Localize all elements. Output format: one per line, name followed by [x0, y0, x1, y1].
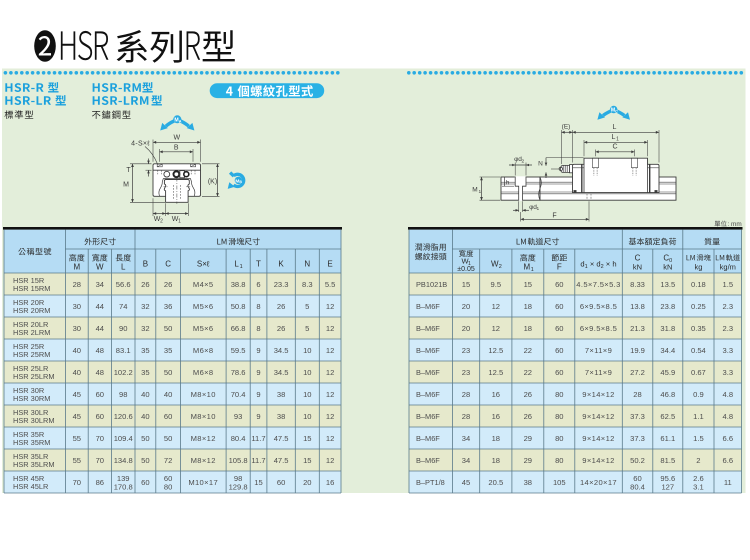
svg-text:45: 45 [73, 412, 81, 421]
svg-text:0.25: 0.25 [691, 302, 706, 311]
svg-text:B–M6F: B–M6F [416, 390, 440, 399]
svg-text:F: F [552, 213, 556, 220]
svg-text:W: W [173, 135, 180, 142]
svg-text:4-S×ℓ: 4-S×ℓ [131, 140, 150, 147]
svg-text:26: 26 [164, 280, 172, 289]
svg-text:M4×5: M4×5 [193, 280, 214, 289]
svg-text:18: 18 [492, 456, 500, 465]
svg-text:B: B [143, 260, 148, 269]
svg-text:27.2: 27.2 [630, 368, 645, 377]
svg-text:B–M6F: B–M6F [416, 302, 440, 311]
svg-text:kg/m: kg/m [720, 262, 736, 271]
svg-text:60: 60 [555, 346, 563, 355]
svg-text:46.8: 46.8 [660, 390, 675, 399]
svg-text:6×9.5×8.5: 6×9.5×8.5 [580, 302, 617, 311]
svg-text:M10×17: M10×17 [188, 478, 218, 487]
svg-text:0.54: 0.54 [691, 346, 706, 355]
svg-text:5.5: 5.5 [325, 280, 336, 289]
svg-text:170.8: 170.8 [114, 483, 133, 492]
svg-text:20.5: 20.5 [488, 478, 503, 487]
svg-text:1.5: 1.5 [693, 434, 704, 443]
svg-text:34: 34 [462, 456, 470, 465]
svg-text:35: 35 [141, 346, 149, 355]
svg-text:48: 48 [96, 368, 104, 377]
svg-text:3.1: 3.1 [693, 483, 704, 492]
svg-text:30: 30 [73, 324, 81, 333]
svg-text:B–PT1/8: B–PT1/8 [416, 478, 445, 487]
svg-text:0.67: 0.67 [691, 368, 706, 377]
svg-text:11.7: 11.7 [251, 456, 265, 465]
svg-text:0.18: 0.18 [691, 280, 706, 289]
svg-text:kg: kg [694, 262, 702, 271]
svg-text:W: W [96, 262, 104, 271]
svg-text:72: 72 [164, 456, 172, 465]
svg-text:9: 9 [256, 346, 260, 355]
svg-text:34.4: 34.4 [660, 346, 675, 355]
svg-text:28: 28 [633, 390, 641, 399]
svg-text:2: 2 [499, 264, 502, 270]
svg-text:3.3: 3.3 [723, 368, 734, 377]
svg-text:56.6: 56.6 [116, 280, 131, 289]
svg-text:8.33: 8.33 [630, 280, 645, 289]
svg-text:80: 80 [164, 483, 172, 492]
svg-text:5: 5 [305, 302, 309, 311]
svg-text:28: 28 [462, 412, 470, 421]
svg-text:1: 1 [531, 267, 534, 273]
svg-text:47.5: 47.5 [274, 434, 289, 443]
svg-text:kN: kN [633, 262, 642, 271]
svg-text:127: 127 [661, 483, 674, 492]
svg-text:16: 16 [326, 478, 334, 487]
svg-text:1: 1 [478, 189, 481, 195]
svg-text:105: 105 [553, 478, 566, 487]
svg-text:HSR 35LRM: HSR 35LRM [13, 460, 54, 469]
svg-text:93: 93 [234, 412, 242, 421]
svg-text:50: 50 [141, 456, 149, 465]
svg-text:78.6: 78.6 [231, 368, 246, 377]
svg-text:12: 12 [326, 368, 334, 377]
svg-text:h: h [506, 180, 510, 187]
svg-text:HSR 2LRM: HSR 2LRM [13, 328, 50, 337]
svg-text:4.5×7.5×5.3: 4.5×7.5×5.3 [576, 280, 620, 289]
svg-text:N: N [538, 161, 543, 168]
svg-text:44: 44 [96, 302, 104, 311]
svg-text:29: 29 [524, 434, 532, 443]
svg-text:28: 28 [462, 390, 470, 399]
svg-text:10: 10 [303, 368, 311, 377]
svg-text:: mm: : mm [728, 221, 742, 228]
svg-text:M8×10: M8×10 [191, 390, 216, 399]
svg-text:11: 11 [724, 478, 732, 487]
svg-text:1: 1 [616, 136, 619, 142]
svg-text:3.3: 3.3 [723, 346, 734, 355]
svg-text:45: 45 [73, 390, 81, 399]
svg-text:70.4: 70.4 [231, 390, 246, 399]
svg-text:M6×8: M6×8 [193, 346, 214, 355]
svg-text:L: L [612, 134, 616, 141]
svg-text:28: 28 [73, 280, 81, 289]
svg-text:40: 40 [73, 346, 81, 355]
svg-text:M: M [73, 262, 80, 271]
svg-text:11.7: 11.7 [251, 434, 265, 443]
svg-text:9.5: 9.5 [491, 280, 502, 289]
svg-text:T: T [256, 260, 261, 269]
svg-text:20: 20 [303, 478, 311, 487]
svg-text:C: C [165, 260, 171, 269]
svg-text:M8×12: M8×12 [191, 456, 216, 465]
svg-text:19.9: 19.9 [630, 346, 645, 355]
svg-text:34: 34 [96, 280, 104, 289]
svg-text:36: 36 [164, 302, 172, 311]
svg-text:129.8: 129.8 [229, 483, 248, 492]
svg-text:47.5: 47.5 [274, 456, 289, 465]
svg-text:8: 8 [256, 302, 260, 311]
svg-text:M: M [123, 182, 129, 189]
svg-text:80: 80 [555, 456, 563, 465]
svg-text:12: 12 [326, 412, 334, 421]
svg-text:L: L [613, 124, 617, 131]
svg-text:21.3: 21.3 [630, 324, 645, 333]
svg-text:34.5: 34.5 [274, 346, 289, 355]
svg-text:83.1: 83.1 [116, 346, 131, 355]
svg-text:15: 15 [303, 434, 311, 443]
svg-text:5: 5 [305, 324, 309, 333]
svg-text:15: 15 [462, 280, 470, 289]
svg-text:12: 12 [326, 390, 334, 399]
svg-text:10: 10 [303, 346, 311, 355]
svg-text:105.8: 105.8 [229, 456, 248, 465]
svg-text:6×9.5×8.5: 6×9.5×8.5 [580, 324, 617, 333]
svg-text:6: 6 [256, 280, 260, 289]
svg-text:M5×6: M5×6 [193, 324, 214, 333]
svg-text:15: 15 [254, 478, 262, 487]
svg-text:M: M [472, 187, 477, 194]
svg-text:95.6: 95.6 [660, 474, 675, 483]
svg-text:40: 40 [164, 390, 172, 399]
svg-text:M8×12: M8×12 [191, 434, 216, 443]
svg-text:N: N [304, 260, 310, 269]
svg-text:62.5: 62.5 [660, 412, 675, 421]
svg-text:26: 26 [524, 390, 532, 399]
svg-text:37.3: 37.3 [630, 412, 645, 421]
svg-text:12: 12 [326, 324, 334, 333]
svg-text:0.9: 0.9 [693, 390, 704, 399]
svg-text:12: 12 [492, 302, 500, 311]
svg-text:45.9: 45.9 [660, 368, 675, 377]
svg-text:60: 60 [164, 474, 172, 483]
svg-text:22: 22 [524, 346, 532, 355]
svg-text:B–M6F: B–M6F [416, 412, 440, 421]
svg-text:12: 12 [492, 324, 500, 333]
svg-text:60: 60 [555, 368, 563, 377]
svg-text:9×14×12: 9×14×12 [582, 456, 614, 465]
svg-text:±0.05: ±0.05 [457, 266, 475, 273]
svg-text:80: 80 [555, 390, 563, 399]
svg-text:22: 22 [524, 368, 532, 377]
svg-text:HSR 20RM: HSR 20RM [13, 306, 50, 315]
svg-text:80.4: 80.4 [231, 434, 246, 443]
svg-text:M5×6: M5×6 [193, 302, 214, 311]
svg-text:80: 80 [555, 412, 563, 421]
svg-text:81.5: 81.5 [660, 456, 675, 465]
svg-text:60: 60 [277, 478, 285, 487]
svg-text:38.8: 38.8 [231, 280, 246, 289]
svg-text:50.2: 50.2 [630, 456, 645, 465]
svg-text:60: 60 [96, 412, 104, 421]
svg-text:50: 50 [164, 368, 172, 377]
svg-text:12.5: 12.5 [488, 346, 503, 355]
svg-text:38: 38 [277, 390, 285, 399]
svg-text:9: 9 [256, 412, 260, 421]
svg-text:10: 10 [303, 390, 311, 399]
svg-text:44: 44 [96, 324, 104, 333]
svg-text:B–M6F: B–M6F [416, 456, 440, 465]
svg-text:M8×10: M8×10 [191, 412, 216, 421]
svg-text:15: 15 [524, 280, 532, 289]
svg-text:8.3: 8.3 [302, 280, 313, 289]
svg-text:HSR 30LRM: HSR 30LRM [13, 416, 54, 425]
svg-text:F: F [557, 262, 562, 271]
svg-text:B–M6F: B–M6F [416, 434, 440, 443]
svg-text:29: 29 [524, 456, 532, 465]
svg-text:13.5: 13.5 [660, 280, 675, 289]
svg-text:B–M6F: B–M6F [416, 368, 440, 377]
svg-text:8: 8 [256, 324, 260, 333]
svg-text:1: 1 [240, 264, 243, 270]
svg-text:HSR 15RM: HSR 15RM [13, 284, 50, 293]
svg-text:98: 98 [119, 390, 127, 399]
svg-text:40: 40 [141, 390, 149, 399]
svg-text:B–M6F: B–M6F [416, 324, 440, 333]
svg-text:38: 38 [524, 478, 532, 487]
svg-text:4.8: 4.8 [723, 412, 734, 421]
svg-text:20: 20 [462, 302, 470, 311]
svg-text:55: 55 [73, 456, 81, 465]
svg-text:35: 35 [164, 346, 172, 355]
svg-text:26: 26 [141, 280, 149, 289]
svg-text:61.1: 61.1 [660, 434, 675, 443]
svg-text:2: 2 [521, 158, 524, 164]
svg-text:32: 32 [141, 302, 149, 311]
svg-text:B: B [174, 144, 179, 151]
svg-text:1: 1 [536, 206, 539, 212]
svg-text:HSR 25RM: HSR 25RM [13, 350, 50, 359]
svg-text:9: 9 [256, 368, 260, 377]
svg-text:60: 60 [96, 390, 104, 399]
svg-text:PB1021B: PB1021B [416, 280, 447, 289]
svg-text:20: 20 [462, 324, 470, 333]
svg-text:16: 16 [492, 412, 500, 421]
svg-text:E: E [327, 260, 332, 269]
svg-text:A: A [179, 120, 182, 124]
svg-text:60: 60 [555, 302, 563, 311]
svg-text:34: 34 [462, 434, 470, 443]
svg-text:66.8: 66.8 [231, 324, 246, 333]
svg-text:T: T [126, 167, 131, 174]
svg-text:70: 70 [73, 478, 81, 487]
svg-text:50: 50 [164, 434, 172, 443]
svg-text:32: 32 [141, 324, 149, 333]
svg-text:12: 12 [326, 434, 334, 443]
svg-text:18: 18 [524, 302, 532, 311]
svg-text:60: 60 [164, 412, 172, 421]
svg-text:23.3: 23.3 [274, 280, 289, 289]
svg-text:HSR 25LRM: HSR 25LRM [13, 372, 54, 381]
svg-text:9×14×12: 9×14×12 [582, 434, 614, 443]
svg-text:23: 23 [462, 368, 470, 377]
svg-text:L: L [121, 262, 126, 271]
svg-text:C: C [615, 110, 618, 114]
svg-text:HSR 35RM: HSR 35RM [13, 438, 50, 447]
svg-text:18: 18 [492, 434, 500, 443]
svg-text:120.6: 120.6 [114, 412, 133, 421]
svg-text:26: 26 [277, 324, 285, 333]
svg-text:59.5: 59.5 [231, 346, 246, 355]
svg-text:60: 60 [555, 280, 563, 289]
svg-text:7×11×9: 7×11×9 [585, 346, 612, 355]
svg-text:B–M6F: B–M6F [416, 346, 440, 355]
svg-text:55: 55 [73, 434, 81, 443]
svg-text:70: 70 [96, 456, 104, 465]
svg-text:6.6: 6.6 [723, 434, 734, 443]
svg-text:0.35: 0.35 [691, 324, 706, 333]
svg-text:2: 2 [160, 219, 163, 225]
svg-text:40: 40 [73, 368, 81, 377]
svg-text:34.5: 34.5 [274, 368, 289, 377]
svg-text:102.2: 102.2 [114, 368, 133, 377]
svg-text:26: 26 [524, 412, 532, 421]
svg-text:2: 2 [696, 456, 700, 465]
svg-text:40: 40 [141, 412, 149, 421]
svg-text:60: 60 [141, 478, 149, 487]
svg-text:6.6: 6.6 [723, 456, 734, 465]
svg-text:9: 9 [256, 390, 260, 399]
svg-text:9×14×12: 9×14×12 [582, 412, 614, 421]
svg-text:2.3: 2.3 [723, 302, 734, 311]
svg-text:(E): (E) [562, 124, 571, 131]
svg-text:60: 60 [555, 324, 563, 333]
svg-text:80: 80 [555, 434, 563, 443]
svg-text:15: 15 [303, 456, 311, 465]
svg-text:26: 26 [277, 302, 285, 311]
svg-text:1.5: 1.5 [723, 280, 734, 289]
svg-text:(K): (K) [208, 179, 217, 186]
svg-text:1: 1 [178, 219, 181, 225]
svg-text:30: 30 [73, 302, 81, 311]
svg-text:45: 45 [462, 478, 470, 487]
svg-text:37.3: 37.3 [630, 434, 645, 443]
svg-text:10: 10 [303, 412, 311, 421]
svg-text:35: 35 [141, 368, 149, 377]
svg-text:4.8: 4.8 [723, 390, 734, 399]
svg-text:74: 74 [119, 302, 127, 311]
svg-text:98: 98 [234, 474, 242, 483]
svg-text:C: C [635, 254, 641, 263]
svg-text:50: 50 [164, 324, 172, 333]
svg-text:HSR 30RM: HSR 30RM [13, 394, 50, 403]
svg-text:13.8: 13.8 [630, 302, 645, 311]
svg-text:139: 139 [117, 474, 130, 483]
svg-text:60: 60 [633, 474, 641, 483]
svg-text:14×20×17: 14×20×17 [580, 478, 617, 487]
svg-text:M6×8: M6×8 [193, 368, 214, 377]
svg-text:1.1: 1.1 [693, 412, 704, 421]
svg-text:134.8: 134.8 [114, 456, 133, 465]
svg-text:S×ℓ: S×ℓ [197, 260, 210, 269]
svg-text:12: 12 [326, 302, 334, 311]
svg-text:50: 50 [141, 434, 149, 443]
svg-text:16: 16 [492, 390, 500, 399]
svg-text:80.4: 80.4 [630, 483, 645, 492]
svg-text:48: 48 [96, 346, 104, 355]
svg-text:31.8: 31.8 [660, 324, 675, 333]
svg-text:C: C [612, 144, 617, 151]
svg-text:12: 12 [326, 456, 334, 465]
svg-text:18: 18 [524, 324, 532, 333]
svg-text:23: 23 [462, 346, 470, 355]
svg-text:86: 86 [96, 478, 104, 487]
svg-text:2.6: 2.6 [693, 474, 704, 483]
svg-text:50.8: 50.8 [231, 302, 246, 311]
svg-text:38: 38 [277, 412, 285, 421]
svg-text:HSR 45LR: HSR 45LR [13, 482, 48, 491]
svg-text:2.3: 2.3 [723, 324, 734, 333]
svg-text:90: 90 [119, 324, 127, 333]
svg-text:12: 12 [326, 346, 334, 355]
svg-text:M: M [523, 262, 530, 271]
svg-text:7×11×9: 7×11×9 [585, 368, 612, 377]
svg-text:kN: kN [663, 262, 672, 271]
svg-text:9×14×12: 9×14×12 [582, 390, 614, 399]
svg-text:109.4: 109.4 [114, 434, 133, 443]
svg-text:23.8: 23.8 [660, 302, 675, 311]
svg-text:12.5: 12.5 [488, 368, 503, 377]
svg-text:70: 70 [96, 434, 104, 443]
svg-text:K: K [278, 260, 284, 269]
